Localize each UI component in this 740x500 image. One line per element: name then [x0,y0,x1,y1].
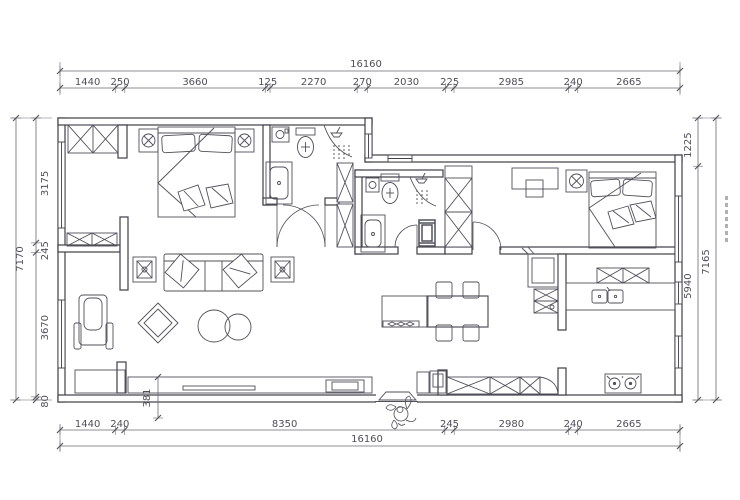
dim-label: 240 [110,419,129,430]
pillow [178,185,205,211]
dining [382,282,488,341]
dim-total-bottom: 16160 [351,434,383,445]
door-arc [395,225,417,247]
dim-total-left: 7170 [15,246,26,271]
dim-label: 1440 [75,419,100,430]
dim-label: 1225 [683,132,694,157]
sink-basin [592,290,607,303]
bedroom1 [67,125,254,246]
duct-shafts [337,163,353,247]
sofa [164,254,263,291]
dim-label: 3670 [40,315,51,340]
bathroom2 [361,173,436,252]
dim-label: 8350 [272,419,297,430]
shower-screen [410,177,436,206]
dim-total-right: 7165 [701,249,712,274]
dim-label: 245 [440,419,459,430]
pillow [590,179,620,197]
shower [410,173,436,206]
double-bed [589,172,656,248]
dim-label: 2030 [394,77,419,88]
side-table [271,257,294,282]
dim-label: 2980 [499,419,524,430]
floor-plan-canvas: 1440250366012522702702030225298524026651… [0,0,740,500]
dim-label: 80 [40,395,51,408]
bath1-west-wall [263,125,270,205]
gas-stove [605,374,641,393]
dim-label: 2270 [301,77,326,88]
toilet [381,174,399,204]
desk [512,168,558,189]
dim-label: 1440 [75,77,100,88]
door-arc [277,205,319,247]
door-arc [473,222,501,250]
dim-label: 5940 [683,273,694,298]
counter-with-sink [566,283,675,310]
dim-label: 2985 [499,77,524,88]
pillow [199,134,233,153]
pillow [630,201,656,222]
island-cabinet [382,296,428,327]
dim-label: 240 [564,77,583,88]
door-arc [283,205,325,247]
double-bed [158,127,235,217]
tv [183,386,255,390]
dining-table [427,296,488,327]
bottom-counter [447,377,558,394]
dim-label: 3660 [182,77,207,88]
pillow [206,184,233,208]
bedroom2 [445,166,656,283]
dim-label: 125 [258,77,277,88]
coffee-table [138,303,178,343]
corner-basin [366,178,379,192]
dim-label: 225 [440,77,459,88]
dim-label: 250 [110,77,129,88]
pillow [622,179,652,197]
toilet [296,128,315,158]
dim-label: 3175 [40,171,51,196]
pillow [162,134,196,153]
dim-label: 270 [353,77,372,88]
side-table [133,257,156,282]
shoe-cabinet [417,372,429,393]
tv-cabinet [128,377,372,393]
dim-label: 2665 [616,419,641,430]
living-pier [120,217,128,290]
watermark [725,196,728,242]
water-heater [419,220,435,246]
dim-detail-tv-wall: 381 [142,388,153,407]
sink-basin [608,290,623,303]
ottoman [225,314,251,340]
stool [526,180,543,197]
shower [324,125,352,159]
kitchen-west-wall [558,254,566,330]
lounge-chair [74,295,113,349]
dim-label: 2665 [616,77,641,88]
dim-label: 240 [564,419,583,430]
dim-total-top: 16160 [350,59,382,70]
dim-label: 245 [40,241,51,260]
